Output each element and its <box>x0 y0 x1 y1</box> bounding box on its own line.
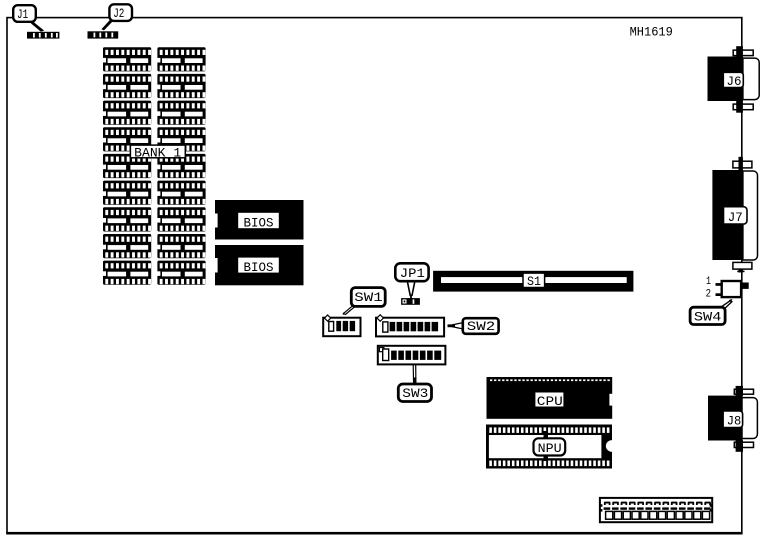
svg-text:2: 2 <box>706 288 711 300</box>
svg-text:SW2: SW2 <box>467 319 496 334</box>
svg-text:BANK 1: BANK 1 <box>134 145 181 160</box>
svg-text:BIOS: BIOS <box>244 260 274 275</box>
svg-text:J6: J6 <box>727 74 742 89</box>
svg-text:1: 1 <box>706 276 711 288</box>
svg-text:SW3: SW3 <box>402 386 428 401</box>
svg-text:S1: S1 <box>527 274 541 289</box>
svg-text:J1: J1 <box>17 7 28 22</box>
svg-text:NPU: NPU <box>538 441 562 456</box>
svg-text:SW1: SW1 <box>354 290 383 305</box>
svg-text:CPU: CPU <box>537 394 563 409</box>
svg-text:JP1: JP1 <box>400 266 425 281</box>
svg-text:SW4: SW4 <box>694 310 722 325</box>
svg-text:J2: J2 <box>113 6 124 21</box>
svg-text:BIOS: BIOS <box>244 215 274 230</box>
svg-text:J7: J7 <box>728 210 743 225</box>
svg-text:J8: J8 <box>727 414 742 429</box>
svg-text:MH1619: MH1619 <box>630 26 673 40</box>
